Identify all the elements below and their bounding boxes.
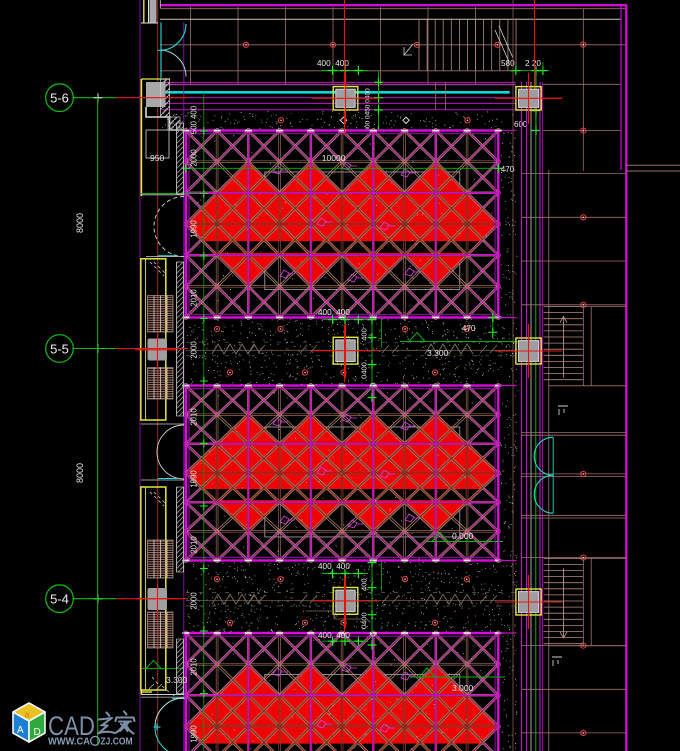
- svg-text:1990: 1990: [190, 470, 199, 488]
- svg-text:470: 470: [462, 324, 476, 333]
- svg-text:5-4: 5-4: [50, 592, 69, 607]
- svg-text:2000: 2000: [190, 341, 199, 359]
- svg-text:WWW.CA: WWW.CA: [48, 737, 90, 748]
- svg-text:0400: 0400: [360, 362, 369, 379]
- svg-text:10000: 10000: [322, 153, 346, 163]
- svg-text:ZJ.COM: ZJ.COM: [101, 737, 133, 748]
- svg-text:A: A: [17, 725, 24, 736]
- svg-text:2010: 2010: [190, 536, 199, 554]
- svg-text:400: 400: [360, 578, 369, 591]
- svg-text:2000: 2000: [190, 592, 199, 610]
- svg-text:2010: 2010: [190, 289, 199, 307]
- svg-text:500 400: 500 400: [190, 105, 199, 134]
- svg-text:2010: 2010: [190, 658, 199, 676]
- svg-text:5-6: 5-6: [50, 91, 69, 106]
- svg-text:2000: 2000: [190, 149, 199, 167]
- svg-text:400: 400: [360, 328, 369, 341]
- svg-text:500 0450 0400: 500 0450 0400: [365, 88, 372, 132]
- svg-text:470: 470: [501, 165, 515, 174]
- svg-text:0.000: 0.000: [452, 531, 474, 541]
- svg-text:8000: 8000: [75, 463, 85, 483]
- svg-text:3.000: 3.000: [452, 683, 474, 693]
- svg-text:1990: 1990: [190, 220, 199, 238]
- svg-text:8000: 8000: [75, 213, 85, 233]
- svg-text:a: a: [25, 710, 30, 720]
- svg-text:950: 950: [150, 153, 164, 163]
- svg-text:0: 0: [371, 382, 378, 386]
- svg-text:600: 600: [514, 120, 528, 129]
- svg-text:3.300: 3.300: [427, 348, 449, 358]
- svg-text:0400: 0400: [360, 612, 369, 629]
- svg-text:5-5: 5-5: [50, 341, 69, 356]
- svg-text:0: 0: [371, 633, 378, 637]
- svg-text:2 20: 2 20: [525, 59, 541, 68]
- svg-text:1990: 1990: [190, 725, 199, 743]
- svg-text:2010: 2010: [190, 408, 199, 426]
- svg-text:D: D: [34, 727, 41, 738]
